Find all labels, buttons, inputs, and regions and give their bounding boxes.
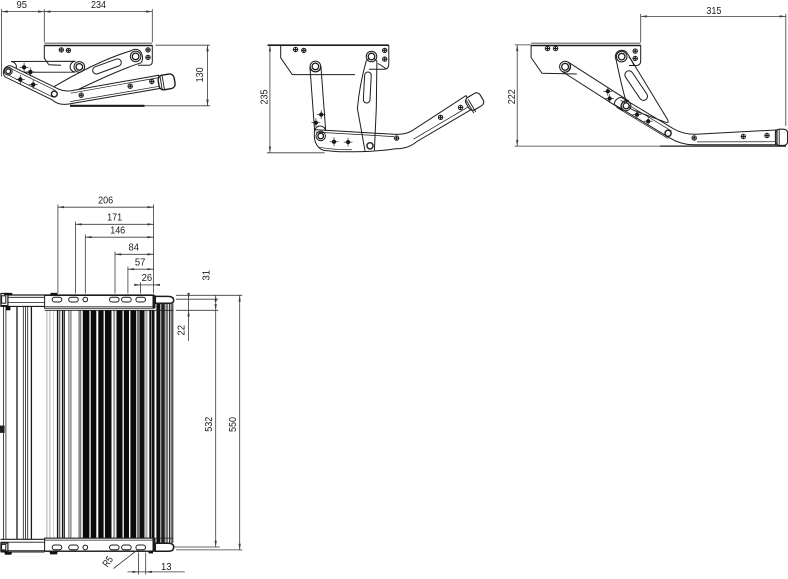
svg-text:234: 234 bbox=[91, 0, 106, 11]
svg-text:31: 31 bbox=[202, 270, 213, 281]
svg-text:22: 22 bbox=[177, 325, 188, 336]
svg-text:95: 95 bbox=[17, 0, 28, 11]
svg-text:171: 171 bbox=[107, 212, 122, 223]
svg-text:222: 222 bbox=[507, 89, 518, 104]
svg-text:315: 315 bbox=[706, 6, 721, 17]
svg-text:550: 550 bbox=[228, 417, 239, 432]
svg-text:146: 146 bbox=[110, 225, 125, 236]
svg-text:26: 26 bbox=[142, 273, 153, 284]
svg-text:235: 235 bbox=[260, 89, 271, 104]
svg-text:206: 206 bbox=[98, 195, 113, 206]
svg-text:57: 57 bbox=[135, 257, 146, 268]
svg-text:84: 84 bbox=[129, 242, 140, 253]
svg-text:13: 13 bbox=[161, 562, 172, 573]
svg-text:532: 532 bbox=[204, 416, 215, 431]
svg-text:130: 130 bbox=[195, 67, 206, 82]
